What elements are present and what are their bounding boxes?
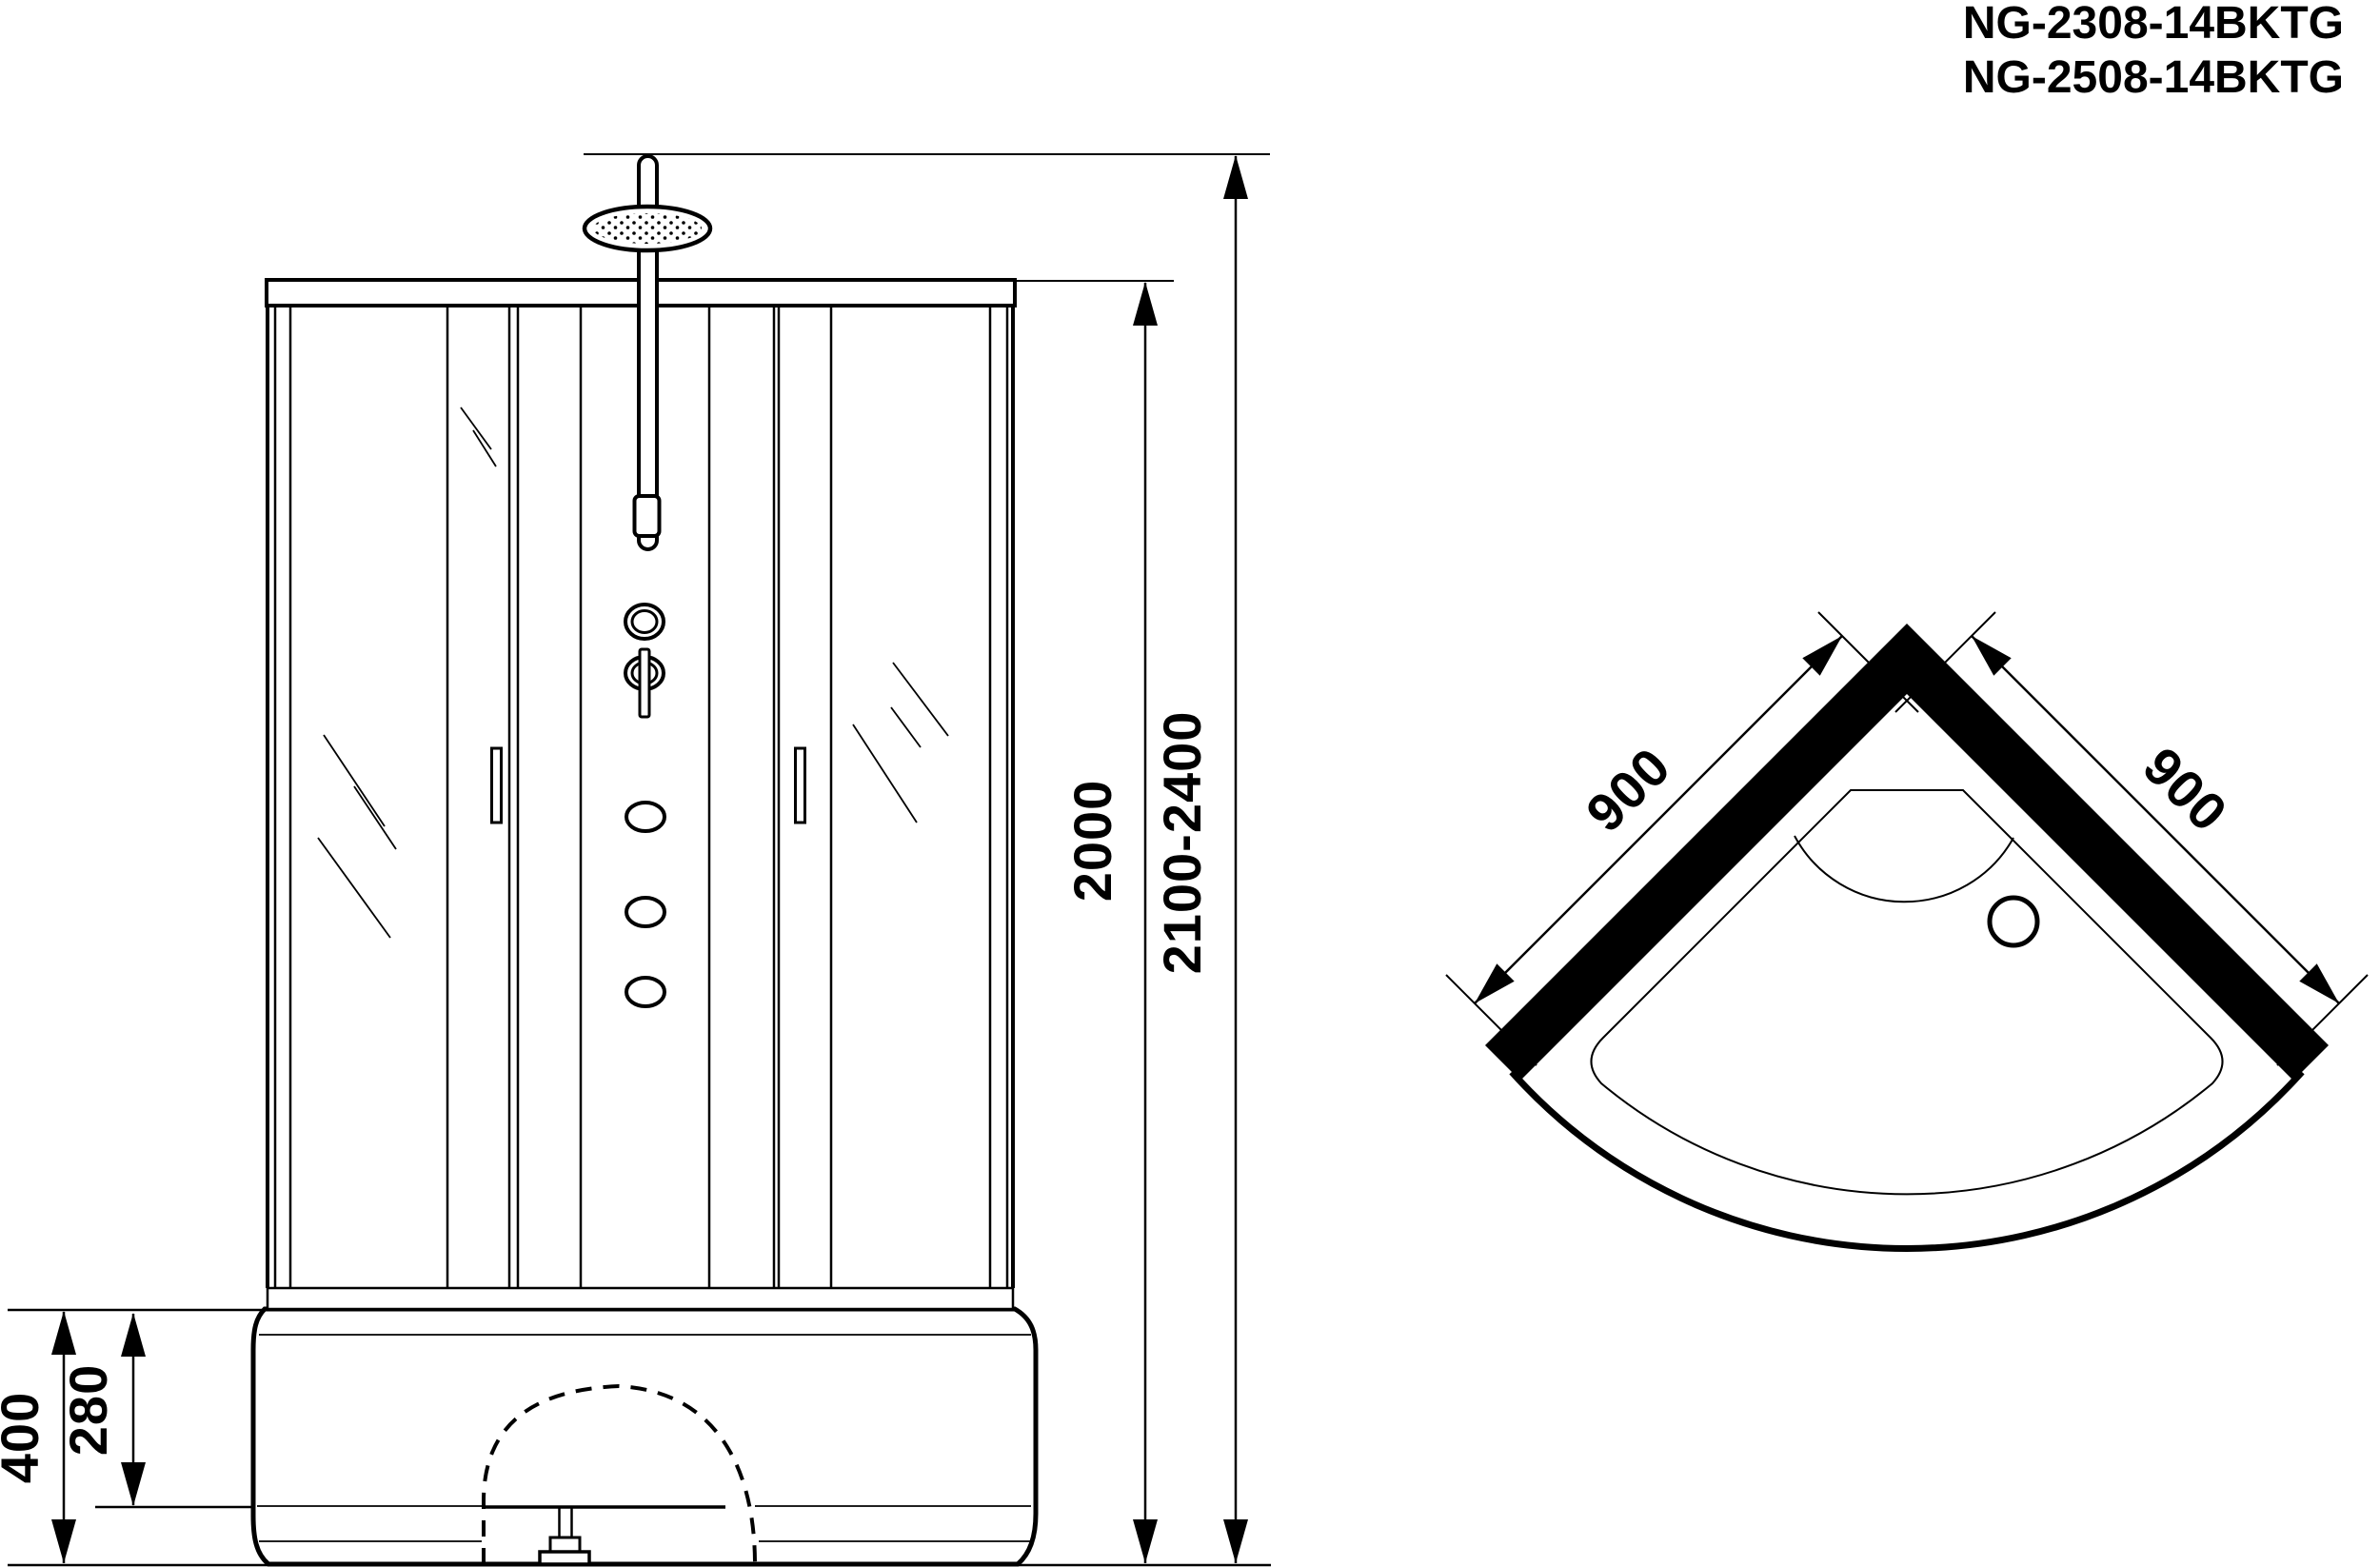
curved-front-edge — [1512, 1072, 2302, 1248]
dim-label-tray-height: 400 — [0, 1392, 50, 1483]
shine-mark — [318, 838, 390, 938]
arrowhead-up — [121, 1313, 146, 1357]
door-handle-right — [796, 748, 805, 823]
shine-mark — [324, 735, 385, 826]
dimension-line — [1475, 636, 1842, 1003]
door-handle-left — [492, 748, 502, 823]
shower-head-spray-dots — [593, 213, 702, 244]
shower-cabin-drawing: NG-2308-14BKTG NG-2508-14BKTG — [0, 0, 2380, 1567]
arrowhead-up — [1133, 282, 1158, 326]
shine-mark — [891, 707, 921, 747]
model-number-line-2: NG-2508-14BKTG — [1963, 52, 2344, 103]
corner-seat-arc — [1795, 836, 2013, 902]
shower-slider-bracket — [635, 496, 660, 536]
arrowhead-down — [121, 1462, 146, 1506]
shine-mark — [461, 407, 491, 449]
model-number-line-1: NG-2308-14BKTG — [1963, 0, 2344, 49]
arrowhead-down — [1133, 1519, 1158, 1563]
shine-mark — [354, 786, 396, 849]
drain-foot-base — [540, 1552, 589, 1564]
shine-mark — [893, 663, 948, 736]
drain-foot-body — [550, 1537, 580, 1552]
dim-label-left-side: 900 — [1575, 736, 1682, 843]
back-walls — [1485, 624, 2329, 1081]
dimension-total-height — [1223, 155, 1248, 1563]
dimension-right-side — [1972, 636, 2339, 1003]
body-jet-1 — [626, 803, 664, 831]
dim-label-cabin-height: 2000 — [1062, 780, 1122, 903]
dim-label-right-side: 900 — [2132, 736, 2239, 843]
technical-drawing-sheet: NG-2308-14BKTG NG-2508-14BKTG — [0, 0, 2380, 1567]
arrowhead-up — [51, 1311, 76, 1355]
body-jet-3 — [626, 978, 664, 1006]
dim-label-total-height: 2100-2400 — [1152, 711, 1212, 975]
dim-label-tray-depth: 280 — [58, 1364, 118, 1456]
dimension-left-side — [1475, 636, 1842, 1003]
dimension-tray-depth — [121, 1313, 146, 1506]
mixer-lever — [640, 649, 649, 717]
shower-tray-outline — [253, 1309, 1036, 1564]
dimension-line — [1972, 636, 2339, 1003]
top-view — [1446, 612, 2368, 1248]
body-jet-2 — [626, 898, 664, 926]
bottom-frame-rail — [268, 1288, 1013, 1309]
shine-mark — [473, 430, 496, 466]
arrowhead-down — [51, 1519, 76, 1563]
drain-hole — [1990, 898, 2037, 945]
arrowhead-down — [1223, 1519, 1248, 1563]
arrowhead-up — [1223, 155, 1248, 199]
shine-mark — [853, 724, 917, 823]
control-panel-fixtures — [625, 605, 664, 1006]
